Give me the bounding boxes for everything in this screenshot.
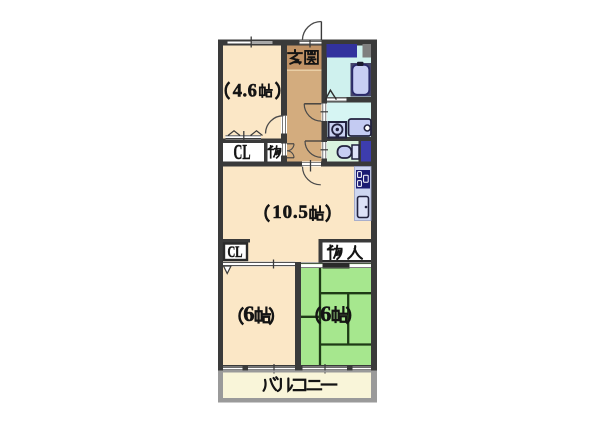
svg-text:10.5: 10.5: [272, 202, 308, 223]
svg-text:CL: CL: [234, 140, 251, 164]
svg-text:4.6: 4.6: [233, 82, 258, 102]
svg-text:CL: CL: [228, 244, 243, 261]
svg-text:6: 6: [243, 301, 254, 326]
svg-text:6: 6: [320, 301, 331, 326]
